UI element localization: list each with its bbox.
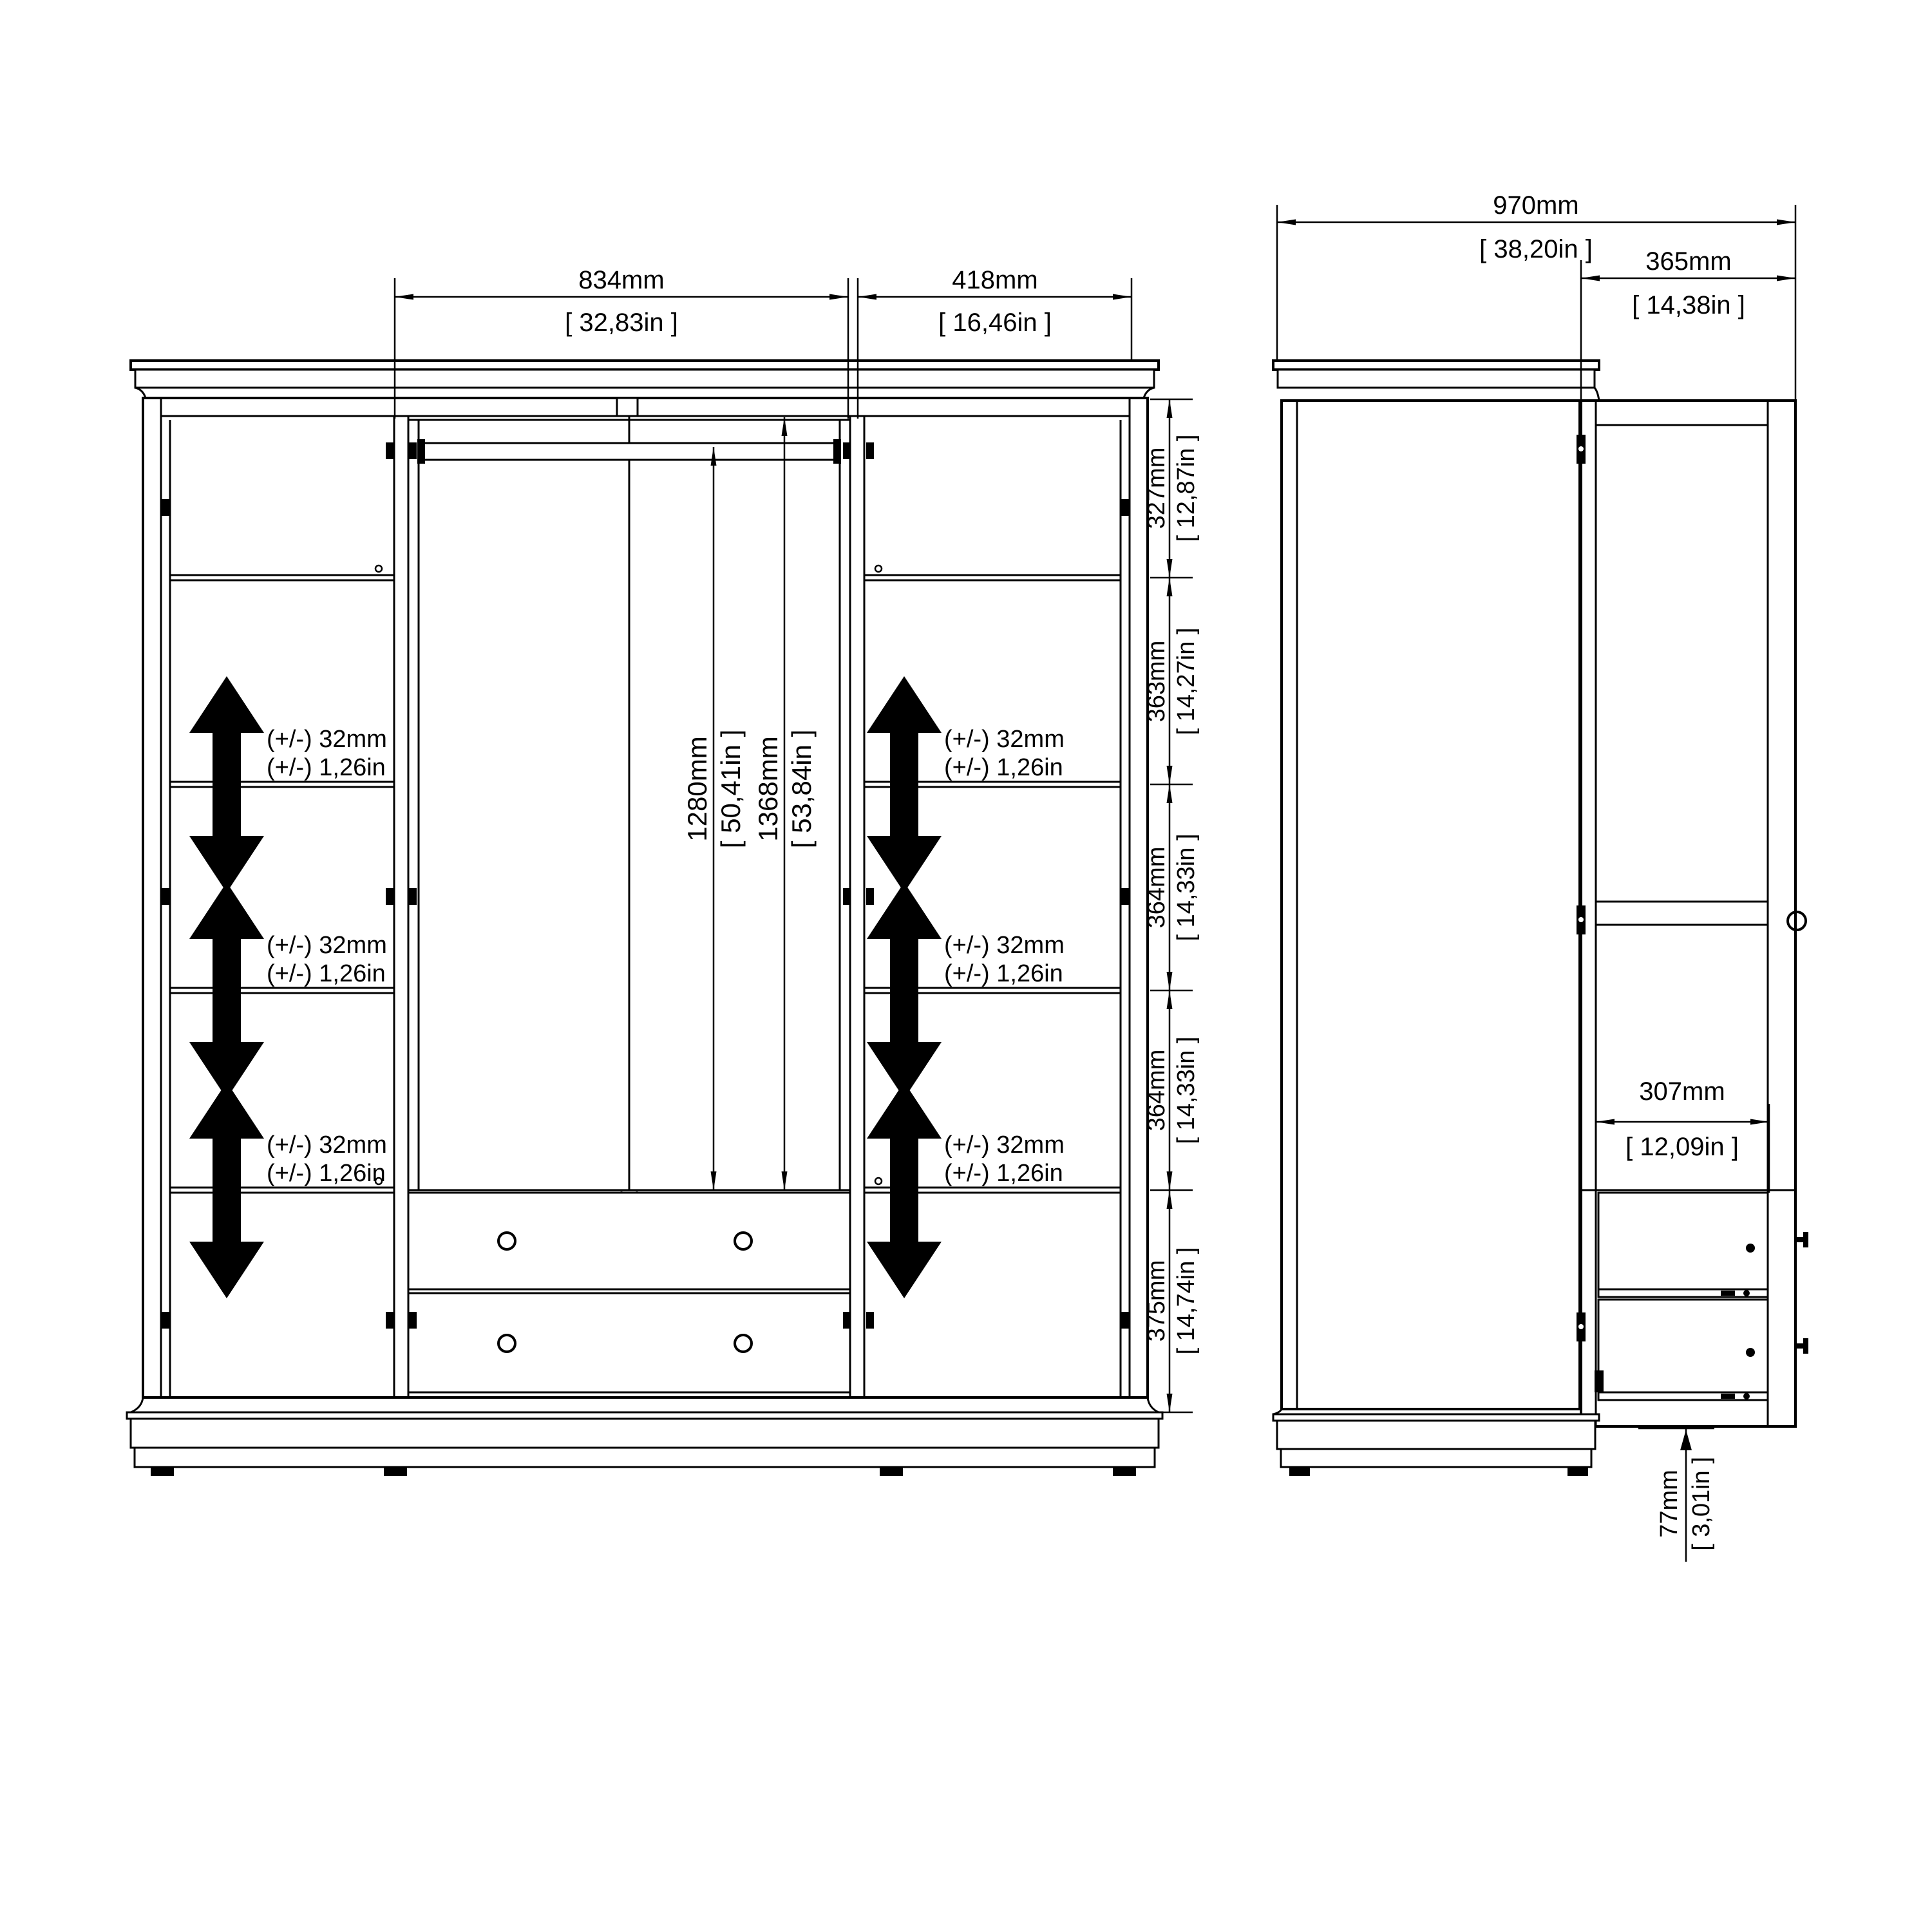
hinge-icon	[843, 888, 851, 905]
hinge-icon	[386, 442, 393, 459]
drawer-knob-stub-icon	[1795, 1343, 1804, 1349]
cornice-molding-band	[1278, 370, 1595, 388]
hinge-icon	[1121, 888, 1129, 905]
dim-label-1368-mm: 1368mm	[753, 736, 783, 841]
dim-label-970-mm: 970mm	[1493, 191, 1578, 220]
adjustable-label-inch: (+/-) 1,26in	[267, 754, 386, 781]
hinge-icon	[866, 442, 874, 459]
hinge-icon	[843, 442, 851, 459]
chain-label-mm: 364mm	[1143, 847, 1170, 929]
adjustable-label-mm: (+/-) 32mm	[944, 932, 1065, 959]
chain-label-inch: [ 14,33in ]	[1173, 834, 1200, 942]
shelf-line	[170, 1188, 394, 1193]
hinge-pin-dot	[1578, 446, 1584, 451]
drawer-box-side	[1598, 1193, 1768, 1289]
side-base	[1273, 1409, 1599, 1476]
foot-icon	[880, 1467, 903, 1476]
adjustable-label-mm: (+/-) 32mm	[267, 1132, 387, 1159]
side-body-outline	[1282, 401, 1580, 1409]
drawer-knob-stub-icon	[1803, 1338, 1808, 1354]
hinge-icon	[162, 499, 169, 516]
rail-glyph-icon	[1721, 1291, 1735, 1296]
hinge-icon	[866, 1312, 874, 1329]
hinge-icon	[409, 1312, 417, 1329]
dim-label-77-inch: [ 3,01in ]	[1688, 1457, 1715, 1551]
hinge-icon	[162, 1312, 169, 1329]
rail-glyph-icon	[1743, 1393, 1750, 1399]
dim-label-834-mm: 834mm	[578, 266, 664, 294]
adjustable-label-inch: (+/-) 1,26in	[944, 1160, 1063, 1187]
plinth-middle-band	[131, 1419, 1159, 1448]
chain-label-mm: 327mm	[1143, 448, 1170, 529]
hinge-icon	[866, 888, 874, 905]
dim-label-834-inch: [ 32,83in ]	[565, 308, 678, 337]
rail-glyph-icon	[1743, 1290, 1750, 1296]
adjustable-label-inch: (+/-) 1,26in	[267, 960, 386, 987]
front-view: 834mm [ 32,83in ] 418mm [ 16,46in ] 327m…	[127, 266, 1200, 1476]
dim-label-1280-inch: [ 50,41in ]	[715, 730, 746, 848]
hinge-icon	[843, 1312, 851, 1329]
drawer-front-bottom	[408, 1293, 850, 1392]
drawer-knob-stub-icon	[1795, 1237, 1804, 1242]
hinge-icon	[1121, 1312, 1129, 1329]
chain-label-inch: [ 14,27in ]	[1173, 628, 1200, 735]
dim-label-970-inch: [ 38,20in ]	[1479, 235, 1593, 263]
drawer-box-side	[1598, 1300, 1768, 1392]
slide-bracket-icon	[1595, 1370, 1604, 1392]
cornice-molding-band	[135, 370, 1154, 388]
foot-icon	[1567, 1467, 1588, 1476]
chain-label-inch: [ 14,33in ]	[1173, 1037, 1200, 1144]
adjustable-label-inch: (+/-) 1,26in	[267, 1160, 386, 1187]
foot-icon	[1113, 1467, 1136, 1476]
screw-dot-icon	[1746, 1244, 1755, 1253]
rail-glyph-icon	[1721, 1394, 1735, 1399]
dim-label-418-mm: 418mm	[952, 266, 1037, 294]
screw-dot-icon	[1746, 1348, 1755, 1357]
hinge-icon	[162, 888, 169, 905]
chain-label-mm: 364mm	[1143, 1050, 1170, 1132]
hinge-icon	[386, 1312, 393, 1329]
hinge-pin-dot	[1578, 917, 1584, 922]
rail-end-cap-icon	[417, 439, 425, 464]
middle-door-right-stile	[840, 420, 850, 1190]
drawer-front-top	[408, 1193, 850, 1289]
adjustable-label-mm: (+/-) 32mm	[944, 726, 1065, 753]
drawer-slide-rail	[1598, 1392, 1768, 1400]
adjustable-label-inch: (+/-) 1,26in	[944, 754, 1063, 781]
shelf-line	[170, 575, 394, 580]
dim-label-307-mm: 307mm	[1639, 1077, 1725, 1106]
adjustable-label-mm: (+/-) 32mm	[267, 726, 387, 753]
adjustable-label-inch: (+/-) 1,26in	[944, 960, 1063, 987]
foot-icon	[1289, 1467, 1310, 1476]
hinge-pin-dot	[1578, 1324, 1584, 1329]
chain-label-mm: 375mm	[1143, 1260, 1170, 1342]
shelf-line	[170, 988, 394, 993]
plinth-bottom-band	[1281, 1449, 1591, 1467]
hinge-icon	[1121, 499, 1129, 516]
front-drawers	[408, 1193, 850, 1392]
chain-label-inch: [ 12,87in ]	[1173, 435, 1200, 542]
chain-label-inch: [ 14,74in ]	[1173, 1247, 1200, 1355]
hinge-icon	[409, 442, 417, 459]
dim-label-77-mm: 77mm	[1656, 1470, 1683, 1538]
hinge-icon	[409, 888, 417, 905]
technical-drawing: 834mm [ 32,83in ] 418mm [ 16,46in ] 327m…	[0, 0, 1932, 1932]
foot-icon	[384, 1467, 407, 1476]
hanging-rail	[419, 443, 840, 460]
plinth-middle-band	[1277, 1421, 1595, 1449]
dim-label-1280-mm: 1280mm	[682, 736, 712, 841]
dim-label-418-inch: [ 16,46in ]	[938, 308, 1052, 337]
plinth-bottom-band	[135, 1448, 1155, 1467]
hinge-icon	[386, 888, 393, 905]
hanger-bracket	[617, 398, 638, 416]
shelf-line	[864, 575, 1121, 580]
drawer-slide-rail	[1598, 1289, 1768, 1297]
drawer-knob-stub-icon	[1803, 1232, 1808, 1247]
cornice-top-band	[1273, 361, 1599, 370]
adjustable-label-mm: (+/-) 32mm	[267, 932, 387, 959]
rail-end-cap-icon	[833, 439, 841, 464]
dim-label-1368-inch: [ 53,84in ]	[786, 730, 817, 848]
shelf-line	[170, 782, 394, 787]
cornice-top-band	[131, 361, 1159, 370]
adjustable-label-mm: (+/-) 32mm	[944, 1132, 1065, 1159]
chain-label-mm: 363mm	[1143, 641, 1170, 723]
foot-icon	[151, 1467, 174, 1476]
dim-label-365-inch: [ 14,38in ]	[1632, 291, 1745, 319]
dim-label-307-inch: [ 12,09in ]	[1625, 1133, 1739, 1161]
middle-door-left-stile	[408, 420, 419, 1190]
dim-label-365-mm: 365mm	[1645, 247, 1731, 276]
